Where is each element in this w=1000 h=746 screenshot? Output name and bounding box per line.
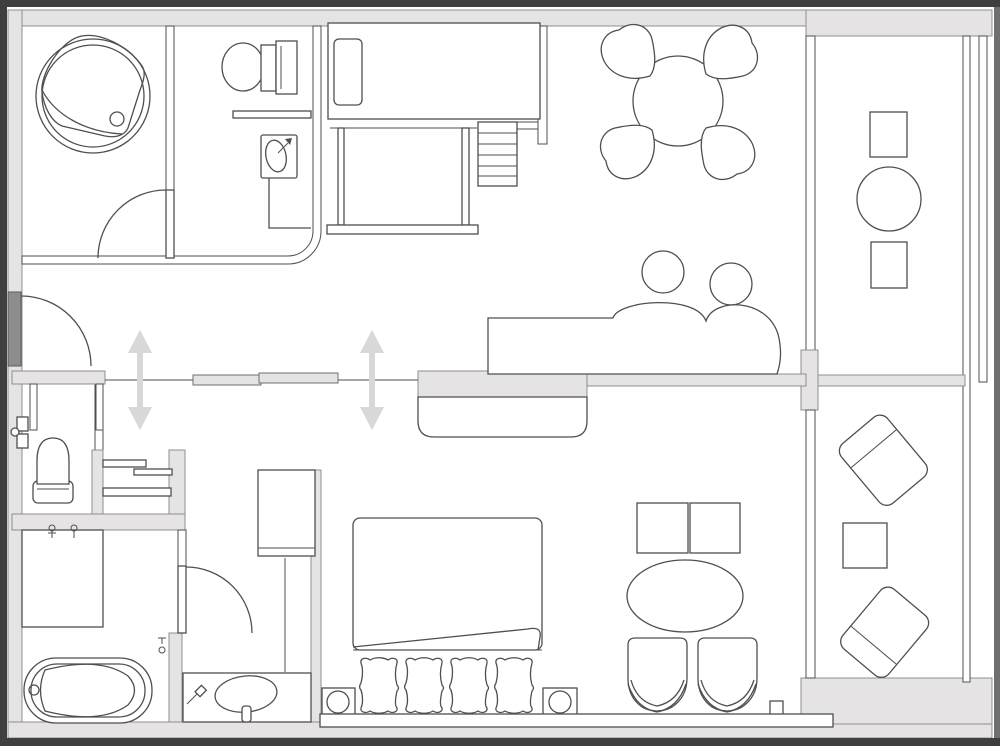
basin-pedestal [269,178,311,228]
nightstand-icon [543,688,577,716]
ledge-stub [770,701,783,715]
dining-chair-icon [600,125,654,178]
headboard-ledge [320,714,833,727]
post-left [92,450,103,516]
lower-bathroom [22,530,166,723]
balcony-lounger-icon [837,583,933,681]
wall-bedroom-right [806,410,815,678]
balcony-table-icon [843,523,887,568]
sofa-icon [488,303,781,374]
side-table-icon [637,503,688,553]
sliding-door-icon [259,373,338,383]
entry-console-icon [12,371,105,384]
balcony-stool-icon [870,112,907,157]
wall-spa-divider [166,26,174,192]
wall-mid-right [587,374,806,386]
toilet-icon [33,438,73,503]
post-right [169,450,185,516]
bedroom [258,470,833,727]
floorplan: Hotel suite floor plan [0,0,1000,746]
living-area [418,251,781,437]
door-arc-icon [178,566,252,633]
wall-balcony-divider [818,375,965,386]
vanity-sink-icon [183,673,311,722]
lounge-chair-icon [698,638,757,712]
wall-door-stub [178,530,186,566]
balcony-outer-rail [979,36,987,382]
entry-door-arc-icon [21,296,91,366]
entry [8,292,105,430]
wardrobe-icon [258,470,315,672]
dining-chair-icon [704,25,758,78]
floorplan-svg: Hotel suite floor plan [0,0,1000,746]
lower-balcony [835,411,932,681]
bed-pillow-icon [360,658,399,714]
loft-bed-area [327,23,540,234]
balcony-railing [963,36,970,682]
vanity-corridor [178,566,311,722]
spa-room [36,35,174,258]
lounge-chair-icon [628,638,687,712]
wall-toilet-bottom [12,514,185,530]
faucet-icon [158,638,166,653]
spa-door-icon [98,190,174,258]
loft-frame-icon [327,128,478,234]
bed-pillow-icon [405,658,444,714]
balcony-lounger-icon [835,411,931,509]
sofa-pillow-icon [642,251,684,293]
wall-tubroom-right [169,633,182,722]
washbasin-icon [261,135,297,178]
sofa-pillow-icon [710,263,752,305]
dining-area [600,24,757,179]
dining-chair-icon [701,126,754,180]
shower-area-icon [22,530,103,627]
bed-pillows [360,658,534,714]
wall-stairs-stub [517,122,538,129]
bed-pillow-icon [495,658,534,714]
toilet-icon [222,41,297,94]
dining-chair-icon [601,24,654,78]
double-bed-icon [353,518,542,650]
side-table-icon [690,503,740,553]
wall-tv [418,371,587,397]
wall-living-right [806,36,815,352]
bed-pillow-icon [450,658,489,714]
bed-pillow-icon [334,39,362,105]
entry-door-icon [8,292,21,366]
nightstand-icon [322,688,355,716]
balcony-table-icon [857,167,921,231]
balcony-stool-icon [871,242,907,288]
sliding-door-icon [193,375,261,385]
tv-console-icon [418,397,587,437]
upper-balcony [857,112,921,288]
shelf-unit-icon [103,460,172,496]
jacuzzi-icon [36,35,150,153]
bathtub-icon [24,658,152,723]
bath-counter-icon [233,111,311,118]
stairs-icon [478,122,517,186]
upper-bathroom [222,41,311,228]
coffee-table-icon [627,560,743,632]
